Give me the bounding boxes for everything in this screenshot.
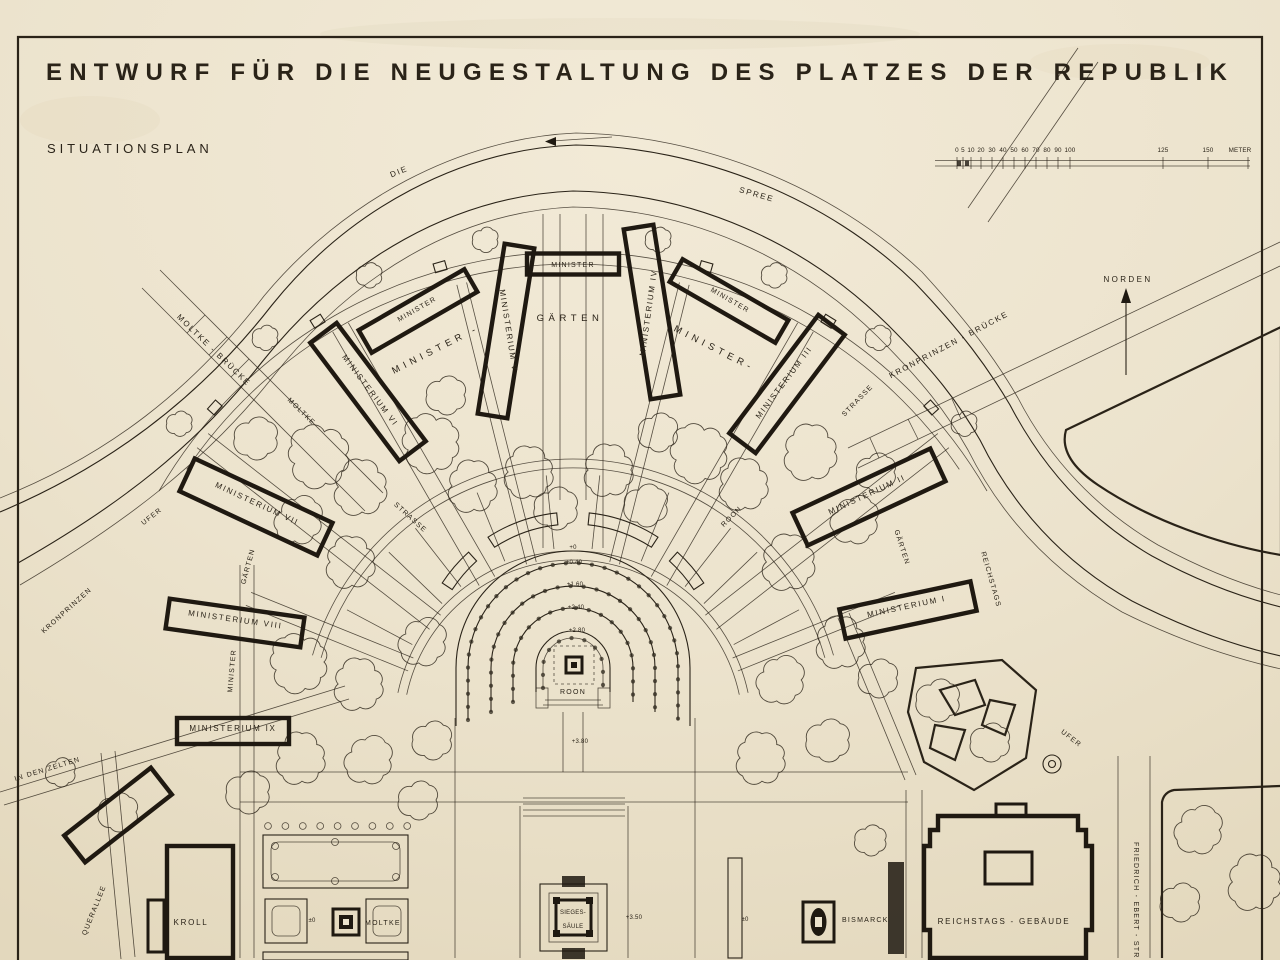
site-plan-drawing: ENTWURF FÜR DIE NEUGESTALTUNG DES PLATZE… (0, 0, 1280, 960)
scale-tick: 50 (1010, 147, 1018, 154)
scale-tick: 60 (1021, 147, 1029, 154)
scale-tick: 125 (1158, 147, 1169, 154)
building-label-ministerium-9: MINISTERIUM IX (189, 724, 276, 733)
plan-sheet: ENTWURF FÜR DIE NEUGESTALTUNG DES PLATZE… (0, 0, 1280, 960)
monuments-and-blocks-part (553, 897, 560, 904)
scale-tick: 10 (967, 147, 975, 154)
monuments-and-blocks-part (815, 917, 822, 927)
scale-tick: 100 (1065, 147, 1076, 154)
level-mark: +0 (569, 545, 577, 551)
level-mark: +0.40 (566, 560, 583, 566)
subtitle-situationsplan: SITUATIONSPLAN (47, 141, 213, 156)
scale-tick: 20 (977, 147, 985, 154)
monuments-and-blocks-part (586, 897, 593, 904)
building-label-kroll: KROLL (173, 918, 208, 927)
level-mark: +2.40 (568, 605, 585, 611)
building-label-reichstag: REICHSTAGS - GEBÄUDE (938, 917, 1071, 926)
scale-tick: 90 (1054, 147, 1062, 154)
page-title: ENTWURF FÜR DIE NEUGESTALTUNG DES PLATZE… (46, 59, 1234, 86)
level-mark: ±0 (741, 917, 749, 923)
area-label-gaerten-north: GÄRTEN (537, 313, 604, 324)
scale-tick: 40 (999, 147, 1007, 154)
monuments-and-blocks-part (562, 948, 585, 959)
monuments-and-blocks-part (586, 930, 593, 937)
level-mark: +3.50 (626, 915, 643, 921)
monuments-and-blocks-part (562, 876, 585, 887)
building-label-minister-north: MINISTER (551, 262, 595, 269)
scale-bar-part (957, 161, 961, 167)
scale-tick: 30 (988, 147, 996, 154)
scale-unit-label: METER (1229, 147, 1252, 154)
level-mark: +1.60 (567, 582, 584, 588)
scale-tick: 150 (1203, 147, 1214, 154)
scale-tick: 0 (955, 147, 959, 154)
scale-tick: 70 (1032, 147, 1040, 154)
scale-tick: 80 (1043, 147, 1051, 154)
level-mark: +2.80 (569, 628, 586, 634)
paper-stain (20, 96, 160, 144)
forum-terraces-part (571, 662, 577, 668)
scale-bar-part (965, 161, 969, 167)
monument-label-siegessaeule-2: SÄULE (563, 923, 584, 930)
paper-stain (320, 18, 920, 50)
monument-label-moltke: MOLTKE (365, 920, 401, 927)
monuments-and-blocks-part (553, 930, 560, 937)
monument-label-bismarck: BISMARCK (842, 917, 889, 924)
monument-label-roon: ROON (560, 689, 586, 696)
level-mark: +3.80 (572, 739, 589, 745)
level-mark: ±0 (308, 918, 316, 924)
reichstag-stairs (888, 862, 904, 954)
monuments-and-blocks-part (343, 919, 349, 925)
scale-tick: 5 (961, 147, 965, 154)
street-label-friedrich-ebert-str: FRIEDRICH - EBERT - STR (1132, 842, 1139, 959)
monument-label-siegessaeule-1: SIEGES- (560, 910, 586, 916)
compass-label-norden: NORDEN (1103, 275, 1152, 284)
